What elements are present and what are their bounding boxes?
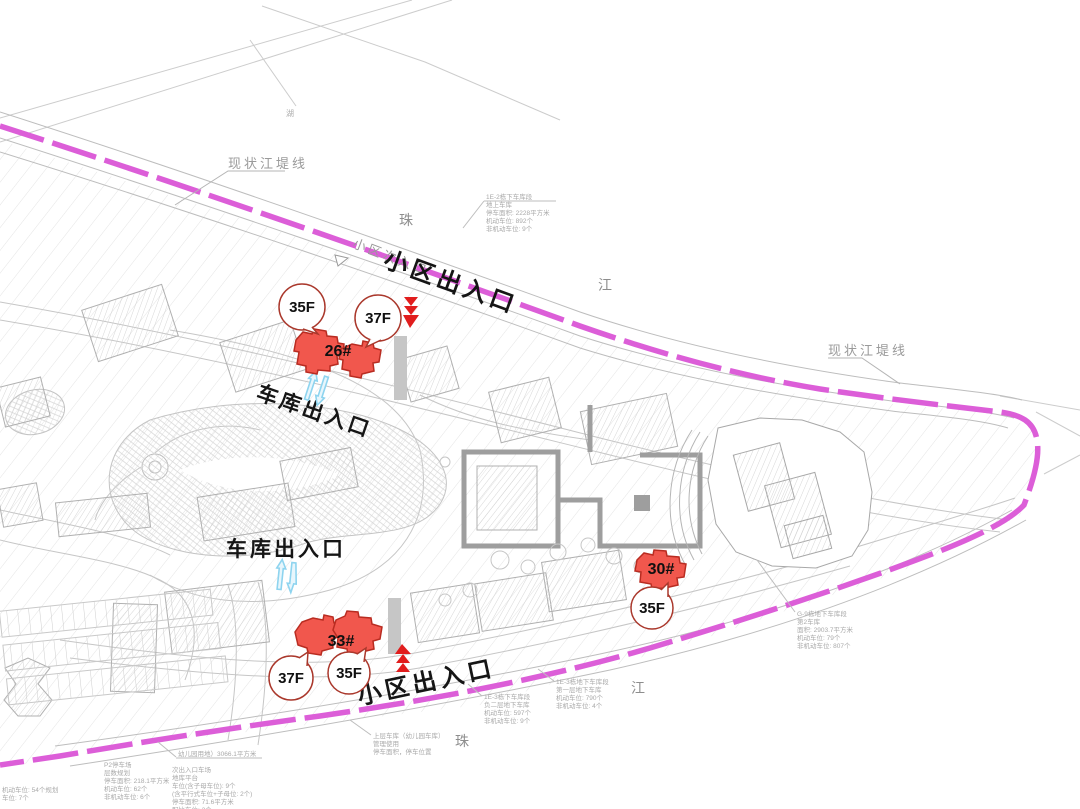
river-char-jiang-bottom: 江 [631,680,645,696]
road-stub-bottom [388,598,401,654]
svg-text:G-9栋地下车库段: G-9栋地下车库段 [797,609,847,618]
svg-text:上层车库（幼儿园车库）: 上层车库（幼儿园车库） [373,731,445,740]
svg-text:(含平行式车位+子母位: 2个): (含平行式车位+子母位: 2个) [172,789,252,798]
svg-text:幼儿园用地）3066.1平方米: 幼儿园用地）3066.1平方米 [178,749,257,758]
svg-text:第2车库: 第2车库 [797,617,821,626]
embankment-label-right: 现状江堤线 [828,343,908,358]
svg-text:非机动车位: 6个: 非机动车位: 6个 [104,792,151,801]
lake-micro-label: 湖 [286,109,294,118]
svg-text:P2停车场: P2停车场 [104,760,132,769]
svg-text:停车面积，停车位置: 停车面积，停车位置 [373,747,432,756]
annotation-bottomleft-3: P2停车场 层数规划 停车面积: 218.1平方米 机动车位: 62个 非机动车… [104,760,170,801]
svg-text:非机动车位: 4个: 非机动车位: 4个 [556,701,603,710]
svg-text:车位(含子母车位): 9个: 车位(含子母车位): 9个 [172,781,236,790]
building-30-label: 30# [648,561,675,578]
site-plan-page: 湖 [0,0,1080,809]
svg-text:1E-3栋下车库段: 1E-3栋下车库段 [484,692,531,701]
river-char-zhu-bottom: 珠 [455,733,469,749]
callout-26-35f-text: 35F [289,299,315,316]
svg-text:机动车位: 597个: 机动车位: 597个 [484,708,531,717]
svg-text:管理使用: 管理使用 [373,739,399,748]
svg-text:非机动车位: 9个: 非机动车位: 9个 [486,224,533,233]
svg-text:第一层地下车库: 第一层地下车库 [556,685,602,694]
annotation-bottomleft-2: 次出入口车场 地库平台 车位(含子母车位): 9个 (含平行式车位+子母位: 2… [172,765,252,809]
svg-text:非机动车位: 807个: 非机动车位: 807个 [797,641,851,650]
svg-text:机动车位: 790个: 机动车位: 790个 [556,693,603,702]
building-26-label: 26# [325,343,352,360]
embankment-label-topleft: 现状江堤线 [228,156,308,171]
garage-entrance-label-bottom: 车库出入口 [226,537,346,561]
river-char-zhu-top: 珠 [399,212,413,228]
svg-text:地上车库: 地上车库 [486,200,513,209]
callout-33-37f-text: 37F [278,670,304,687]
site-plan-canvas: 湖 [0,0,1080,809]
callout-26-37f-text: 37F [365,310,391,327]
callout-33-35f-text: 35F [336,665,362,682]
svg-text:机动车位: 79个: 机动车位: 79个 [797,633,841,642]
svg-text:停车面积: 2228平方米: 停车面积: 2228平方米 [486,208,550,217]
svg-text:地库平台: 地库平台 [172,773,198,782]
svg-text:层数规划: 层数规划 [104,768,130,777]
svg-text:非机动车位: 9个: 非机动车位: 9个 [484,716,531,725]
svg-text:负二层地下车库: 负二层地下车库 [484,700,530,709]
svg-text:次出入口车场: 次出入口车场 [172,765,212,774]
svg-text:机动车位: 54个规划: 机动车位: 54个规划 [2,785,58,794]
svg-text:机动车位: 62个: 机动车位: 62个 [104,784,148,793]
svg-text:1E-3栋地下车库段: 1E-3栋地下车库段 [556,677,609,686]
svg-text:车位: 7个: 车位: 7个 [2,793,29,802]
annotation-bottom-center: 上层车库（幼儿园车库） 管理使用 停车面积，停车位置 [350,720,445,756]
river-char-jiang-top: 江 [598,277,612,293]
road-stub-top [394,336,407,400]
svg-text:面积: 2903.7平方米: 面积: 2903.7平方米 [797,625,853,634]
annotation-left-edge: 机动车位: 54个规划 车位: 7个 [2,785,58,802]
svg-text:停车面积: 71.6平方米: 停车面积: 71.6平方米 [172,797,234,806]
annotation-top: 1E-2栋下车库段 地上车库 停车面积: 2228平方米 机动车位: 892个 … [463,192,556,233]
walkway-node [634,495,650,511]
callout-30-35f-text: 35F [639,600,665,617]
svg-text:1E-2栋下车库段: 1E-2栋下车库段 [486,192,533,201]
svg-text:停车面积: 218.1平方米: 停车面积: 218.1平方米 [104,776,170,785]
building-33-label: 33# [328,633,355,650]
svg-text:机动车位: 892个: 机动车位: 892个 [486,216,533,225]
